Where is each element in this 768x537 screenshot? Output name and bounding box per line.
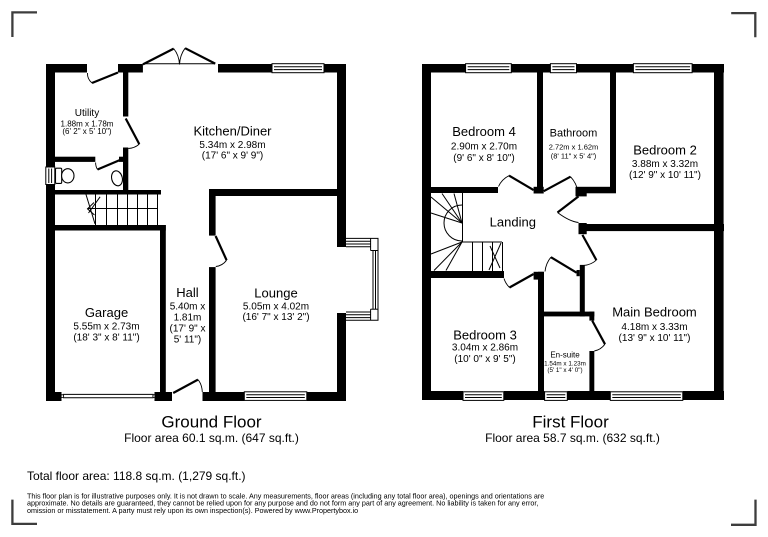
svg-text:4.18m x 3.33m: 4.18m x 3.33m: [621, 322, 687, 333]
svg-text:omission or misstatement. A pa: omission or misstatement. A party must r…: [27, 506, 358, 515]
svg-text:3.88m x 3.32m: 3.88m x 3.32m: [632, 159, 698, 170]
svg-text:(17' 9" x: (17' 9" x: [169, 324, 205, 335]
svg-text:2.90m x 2.70m: 2.90m x 2.70m: [451, 142, 517, 153]
svg-text:(6' 2" x 5' 10"): (6' 2" x 5' 10"): [62, 127, 112, 136]
svg-text:(9' 6" x 8' 10"): (9' 6" x 8' 10"): [453, 153, 515, 164]
svg-text:Ground Floor: Ground Floor: [161, 413, 261, 432]
svg-text:Bedroom 2: Bedroom 2: [633, 143, 697, 158]
svg-text:Floor area 60.1 sq.m. (647 sq.: Floor area 60.1 sq.m. (647 sq.ft.): [124, 431, 299, 445]
svg-text:Lounge: Lounge: [254, 286, 297, 301]
svg-text:1.81m: 1.81m: [174, 313, 202, 324]
svg-text:Kitchen/Diner: Kitchen/Diner: [193, 124, 272, 139]
svg-text:2.72m x 1.62m: 2.72m x 1.62m: [549, 143, 599, 152]
svg-text:First Floor: First Floor: [532, 413, 609, 432]
svg-text:5.34m x 2.98m: 5.34m x 2.98m: [199, 140, 265, 151]
svg-text:Landing: Landing: [490, 215, 536, 230]
svg-text:(10' 0" x 9' 5"): (10' 0" x 9' 5"): [454, 354, 516, 365]
svg-text:Total floor area: 118.8 sq.m.: Total floor area: 118.8 sq.m. (1,279 sq.…: [27, 469, 246, 483]
svg-text:Floor area 58.7 sq.m. (632 sq.: Floor area 58.7 sq.m. (632 sq.ft.): [485, 431, 660, 445]
svg-text:En-suite: En-suite: [550, 351, 580, 360]
svg-text:5.55m x 2.73m: 5.55m x 2.73m: [73, 321, 139, 332]
svg-text:5.40m x: 5.40m x: [170, 302, 206, 313]
svg-text:(8' 11" x 5' 4"): (8' 11" x 5' 4"): [551, 152, 597, 161]
svg-text:Hall: Hall: [176, 285, 199, 300]
svg-text:Utility: Utility: [75, 108, 99, 119]
svg-text:(13' 9" x 10' 11"): (13' 9" x 10' 11"): [619, 333, 691, 344]
svg-text:(17' 6" x 9' 9"): (17' 6" x 9' 9"): [202, 151, 264, 162]
svg-text:5' 11"): 5' 11"): [174, 335, 202, 346]
svg-text:(5' 1" x 4' 0"): (5' 1" x 4' 0"): [547, 367, 582, 374]
svg-text:Bedroom 3: Bedroom 3: [453, 328, 517, 343]
svg-text:Bedroom 4: Bedroom 4: [452, 124, 516, 139]
svg-text:Bathroom: Bathroom: [550, 128, 598, 140]
svg-text:(16' 7" x 13' 2"): (16' 7" x 13' 2"): [242, 312, 309, 323]
svg-text:(18' 3" x 8' 11"): (18' 3" x 8' 11"): [73, 333, 139, 344]
svg-text:3.04m x 2.86m: 3.04m x 2.86m: [452, 343, 518, 354]
svg-text:Garage: Garage: [85, 305, 128, 320]
svg-text:Main Bedroom: Main Bedroom: [612, 305, 697, 320]
svg-text:(12' 9" x 10' 11"): (12' 9" x 10' 11"): [629, 170, 701, 181]
